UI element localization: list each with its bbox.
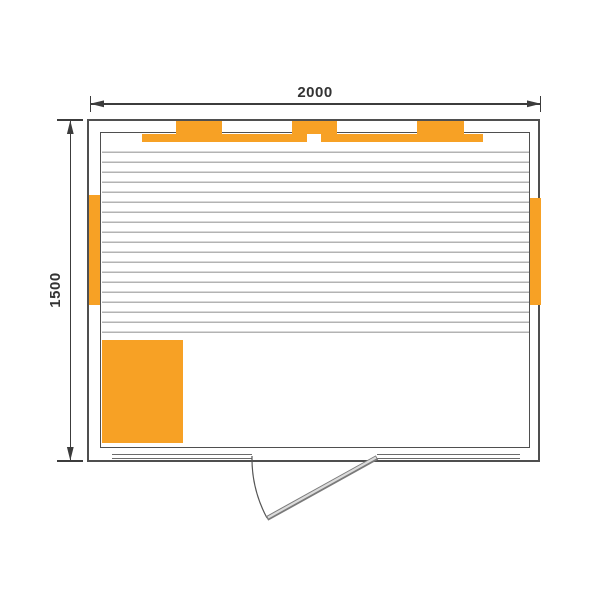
bench-slats (102, 143, 529, 333)
heater-strip-top-left (142, 134, 307, 142)
left-dimension-line (70, 120, 72, 461)
front-panel-right (377, 454, 520, 459)
corner-heater-box (102, 340, 183, 443)
door-leaf (267, 458, 377, 519)
heater-strip-left-wall (89, 195, 100, 305)
door-swing-arc (252, 456, 267, 518)
heater-strip-top-right (321, 134, 483, 142)
top-vent-left (176, 121, 222, 134)
width-dimension-label: 2000 (270, 84, 360, 101)
top-vent-center (292, 121, 337, 134)
front-panel-left (112, 454, 252, 459)
left-dimension-tick-top (57, 119, 83, 121)
top-dimension-tick-right (540, 96, 542, 112)
left-dimension-tick-bottom (57, 460, 83, 462)
top-vent-right (417, 121, 464, 134)
top-dimension-line (90, 103, 541, 105)
height-dimension-label: 1500 (47, 259, 65, 321)
heater-strip-right-wall (530, 198, 541, 305)
sauna-floor-plan: 2000 1500 (0, 0, 600, 600)
top-dimension-tick-left (90, 96, 92, 112)
